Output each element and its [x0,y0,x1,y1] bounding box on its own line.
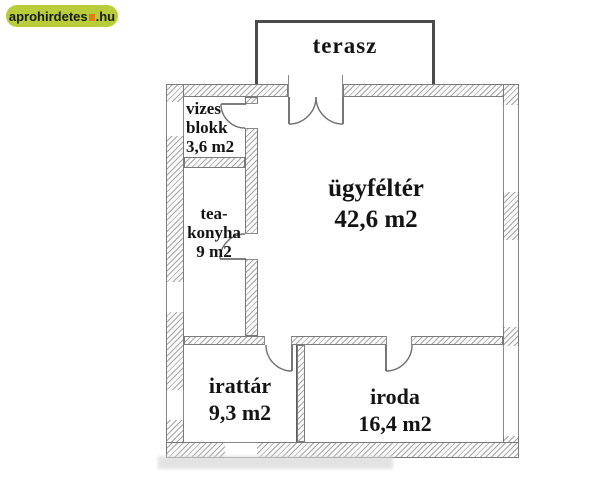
label-terasz: terasz [255,33,435,59]
wall-inner-horizontal [184,336,503,345]
label-tea-konyha: tea- konyha 9 m2 [183,204,245,261]
wall-inner-vertical-left [245,97,258,336]
watermark-tld-text: .hu [96,9,116,24]
door-opening-tea-konyha [245,233,258,260]
label-ugyfelter-area: 42,6 m2 [276,204,476,235]
window-ugyfelter-right-lower [503,240,519,327]
label-vizes-area: 3,6 m2 [186,137,234,156]
scan-shadow-artifact [158,456,393,469]
floorplan-image: aprohirdetes.hu terasz v [0,0,600,494]
watermark-orange-mark-icon [89,14,95,21]
label-irattar: irattár 9,3 m2 [183,372,297,426]
wall-top-left-segment [166,84,288,97]
label-iroda-name: iroda [300,383,490,410]
label-tea-line1: tea- [183,204,245,223]
label-tea-area: 9 m2 [183,242,245,261]
label-irattar-area: 9,3 m2 [183,399,297,426]
window-iroda-right [503,346,519,436]
wall-top-right-segment [343,84,519,97]
window-irattar-left [166,390,184,420]
label-vizes-line2: blokk [186,118,234,137]
label-iroda: iroda 16,4 m2 [300,383,490,437]
window-vizes-left [166,102,184,136]
door-opening-vizes-blokk [245,103,258,129]
door-jamb-right [342,75,343,84]
label-irattar-name: irattár [183,372,297,399]
door-opening-irattar [264,336,292,345]
label-vizes-line1: vizes [186,99,234,118]
door-opening-terasz [288,84,343,97]
wall-vizes-tea-divider [184,157,245,168]
label-vizes-blokk: vizes blokk 3,6 m2 [186,99,234,156]
label-iroda-area: 16,4 m2 [300,410,490,437]
window-ugyfelter-right-upper [503,105,519,192]
label-ugyfelter-name: ügyféltér [276,173,476,204]
label-ugyfelter: ügyféltér 42,6 m2 [276,173,476,235]
door-opening-iroda [386,336,412,345]
door-jamb-left [288,75,289,84]
window-tea-left [166,282,184,312]
site-watermark: aprohirdetes.hu [6,5,118,27]
label-tea-line2: konyha [183,223,245,242]
watermark-site-text: aprohirdetes [9,9,88,24]
